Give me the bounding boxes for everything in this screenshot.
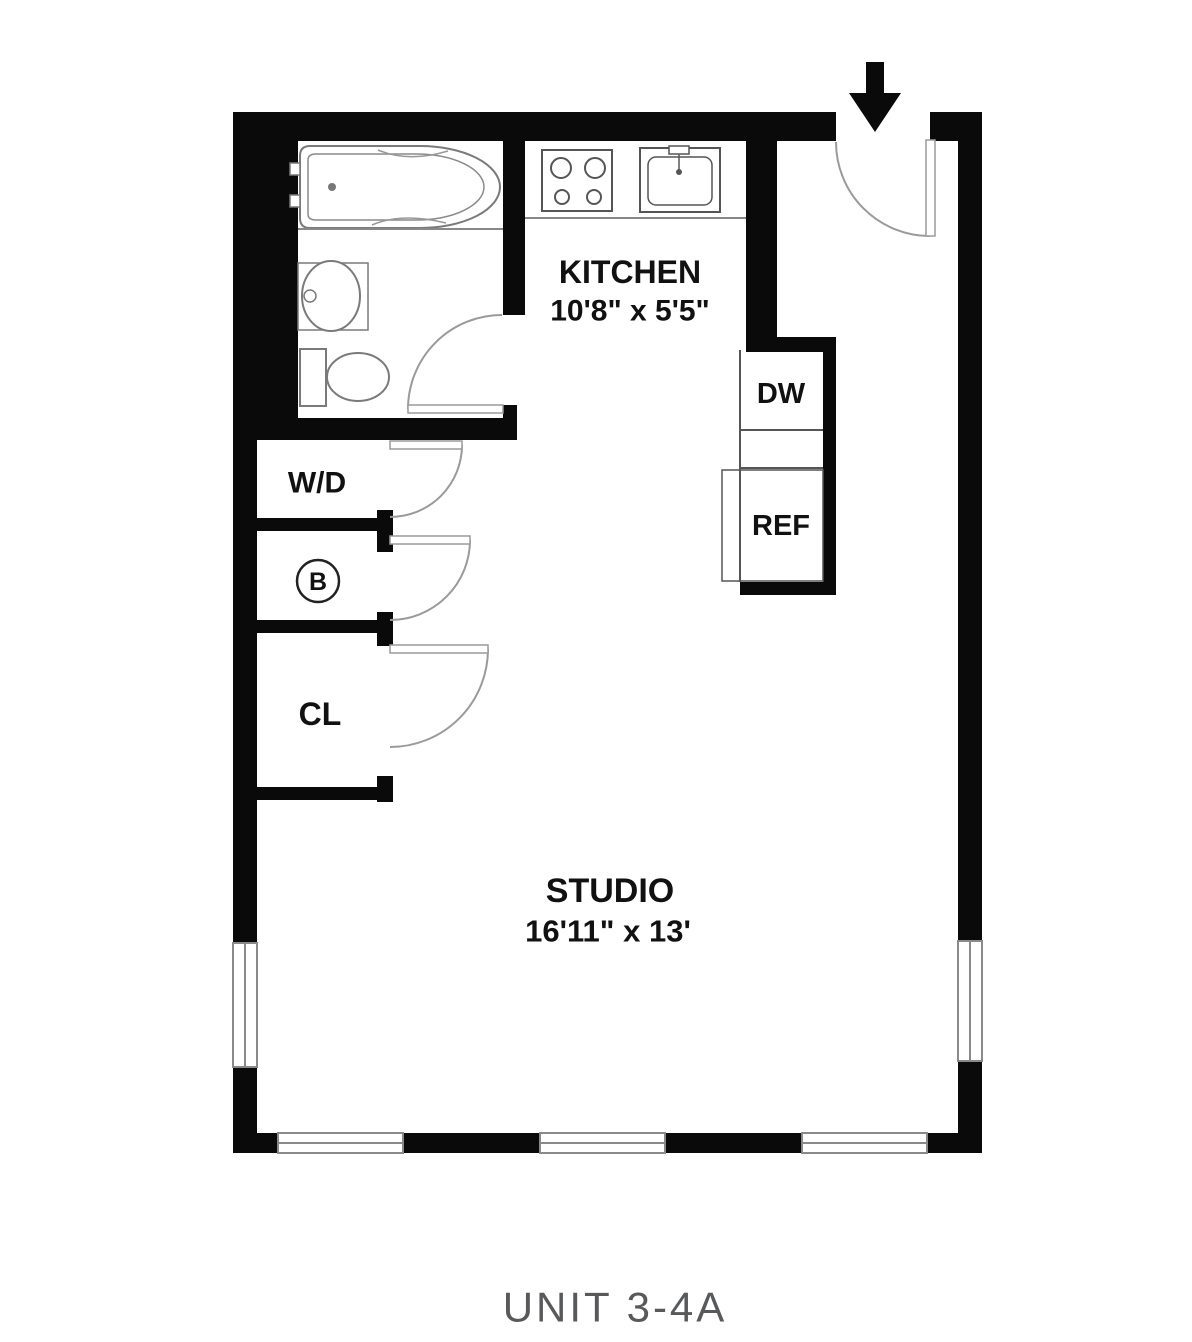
toilet [300,349,389,406]
refrigerator-label: REF [752,510,810,542]
entry-arrow-icon [849,62,901,132]
bathroom-east-wall [503,140,525,315]
bathroom-door-leaf [408,405,503,413]
closet-door-arc [390,649,488,747]
closet-door-leaf [390,645,488,653]
studio-label: STUDIO [546,872,674,910]
top-wall [233,112,836,141]
appliance-nook-east-wall [823,337,836,595]
kitchen-faucet-icon [669,146,689,154]
bathroom-fixtures [290,146,503,406]
washer-dryer-label: W/D [288,467,346,500]
wd-door-leaf [390,441,462,449]
toilet-tank [300,349,326,406]
closet-bottom-wall [233,787,393,800]
bottom-wall-seg-2 [403,1133,540,1153]
bathroom-door-arc [408,315,502,409]
floor-plan-page: KITCHEN 10'8" x 5'5" STUDIO 16'11" x 13'… [0,0,1192,1342]
kitchen-fixtures [525,146,746,218]
stove [542,150,612,211]
entry-door-leaf [926,140,935,236]
bottom-wall-seg-3 [665,1133,802,1153]
windows [233,941,982,1153]
kitchen-dimensions: 10'8" x 5'5" [550,295,710,328]
tub-handle-icon [290,163,300,175]
top-wall-right-corner [930,112,982,141]
doors [390,140,935,747]
floor-plan-drawing: KITCHEN 10'8" x 5'5" STUDIO 16'11" x 13'… [0,0,1192,1342]
closet-jamb [377,776,393,802]
wd-closet-wall [233,518,393,531]
bathtub [290,146,500,228]
boiler-label: B [309,568,327,596]
window-bottom-2 [540,1133,665,1153]
bathroom-west-wall [233,112,298,440]
window-bottom-3 [802,1133,927,1153]
kitchen-partition-wall [746,140,777,352]
window-bottom-1 [278,1133,403,1153]
appliance-nook-bottom-wall [740,582,836,595]
wd-door-arc [390,445,462,517]
bottom-wall-seg-4 [927,1133,982,1153]
right-wall [958,141,982,941]
dishwasher-label: DW [757,378,806,410]
window-right [958,941,982,1061]
boiler-door-leaf [390,536,470,544]
boiler-closet-wall [233,620,393,633]
bathroom-sink [298,261,368,331]
closet-label: CL [299,696,342,732]
entry-door-arc [836,142,930,236]
toilet-bowl [327,353,389,401]
boiler-closet-jamb [377,612,393,646]
unit-caption: UNIT 3-4A [503,1284,728,1331]
studio-dimensions: 16'11" x 13' [525,914,691,949]
left-wall [233,440,257,943]
tub-faucet-icon [328,183,336,191]
bottom-wall-seg-1 [233,1133,278,1153]
kitchen-sink [640,146,720,212]
tub-handle-icon [290,195,300,207]
appliance-nook-top-wall [746,337,836,352]
boiler-door-arc [390,540,470,620]
bathroom-south-wall [233,418,517,440]
window-left [233,943,257,1067]
kitchen-label: KITCHEN [559,254,701,290]
